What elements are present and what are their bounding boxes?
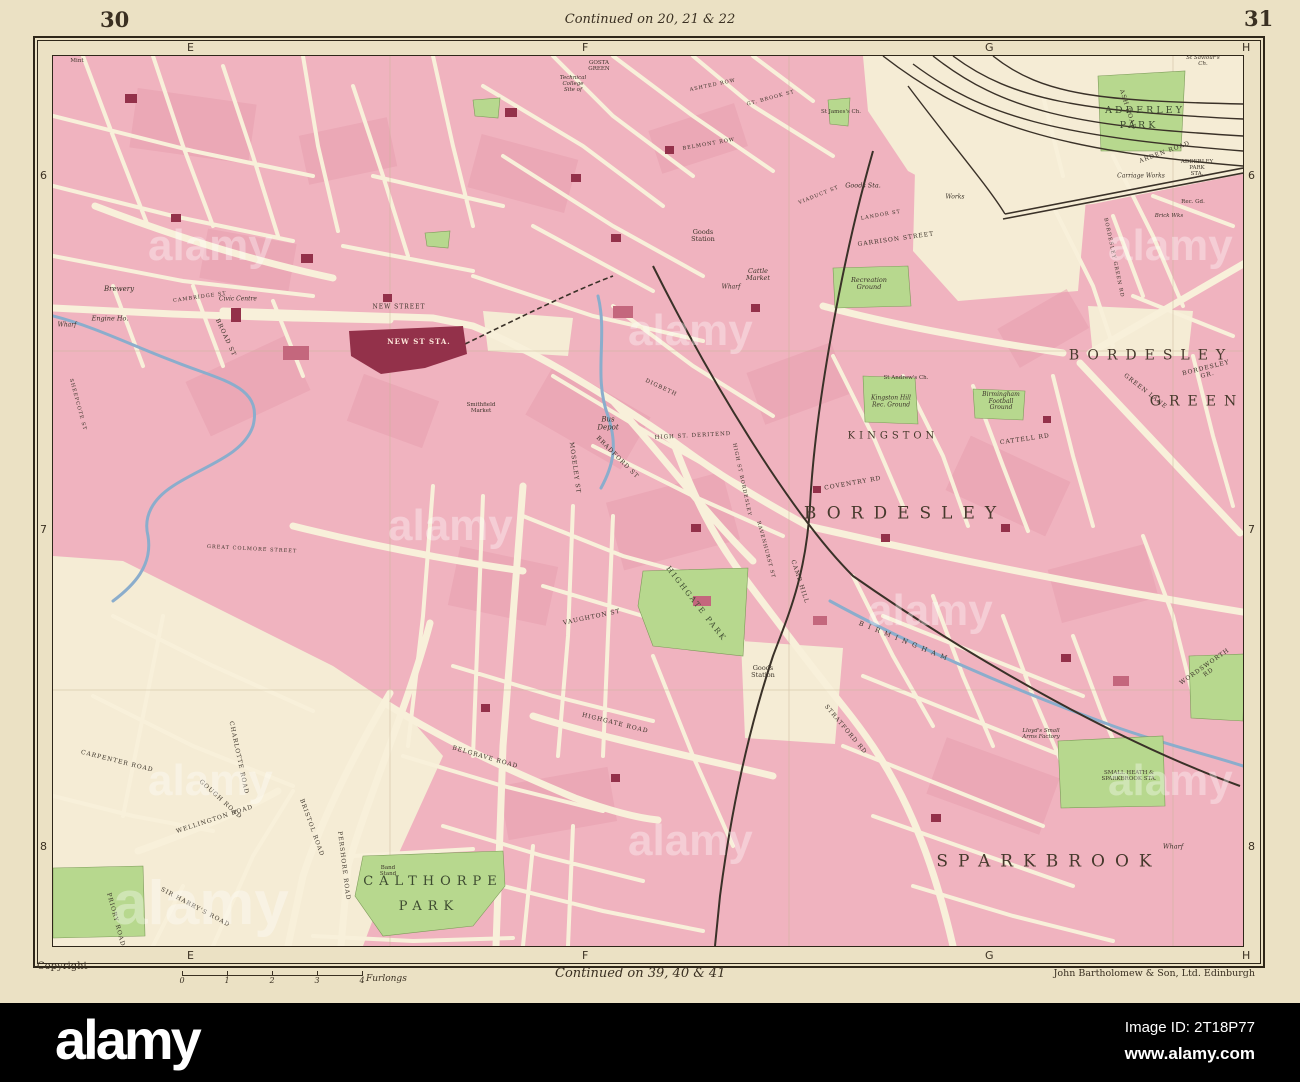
grid-letter-bottom: H [1242, 949, 1250, 962]
scale-unit: Furlongs [366, 974, 407, 984]
continued-top-note: Continued on 20, 21 & 22 [0, 12, 1300, 27]
watermark-layer: alamyalamyalamyalamyalamyalamyalamyalamy… [53, 56, 1243, 946]
alamy-watermark: alamy [628, 816, 753, 866]
map-neatline: EFGH EFGH 678 678 [37, 40, 1261, 964]
grid-number-right: 7 [1248, 523, 1255, 536]
alamy-logo: alamy [55, 1007, 199, 1072]
grid-number-right: 8 [1248, 840, 1255, 853]
grid-band-right: 678 [1246, 55, 1260, 945]
grid-band-left: 678 [38, 55, 52, 945]
grid-letter-bottom: E [187, 949, 194, 962]
grid-letter-top: E [187, 41, 194, 54]
grid-number-left: 8 [40, 840, 47, 853]
map-frame: EFGH EFGH 678 678 [33, 36, 1265, 968]
grid-number-left: 6 [40, 169, 47, 182]
alamy-watermark: alamy [148, 221, 273, 271]
alamy-watermark: alamy [1108, 221, 1233, 271]
copyright-note: Copyright [37, 961, 88, 972]
scale-tick-label: 3 [314, 976, 319, 985]
alamy-bar: alamy Image ID: 2T18P77 www.alamy.com [0, 1003, 1300, 1082]
alamy-watermark: alamy [628, 306, 753, 356]
grid-letter-top: F [582, 41, 588, 54]
alamy-watermark: alamy [1108, 756, 1233, 806]
grid-band-bottom: EFGH [52, 949, 1242, 963]
alamy-watermark: alamy [388, 501, 513, 551]
grid-letter-bottom: F [582, 949, 588, 962]
grid-band-top: EFGH [52, 41, 1242, 55]
grid-letter-top: H [1242, 41, 1250, 54]
scale-tick-label: 4 [359, 976, 364, 985]
grid-number-right: 6 [1248, 169, 1255, 182]
publisher-imprint: John Bartholomew & Son, Ltd. Edinburgh [1054, 968, 1255, 979]
scanned-map-sheet: 30 31 Continued on 20, 21 & 22 EFGH EFGH… [0, 0, 1300, 1082]
grid-letter-top: G [985, 41, 994, 54]
map-canvas: BORDESLEYSPARKBROOKBORDESLEYGREENKINGSTO… [52, 55, 1244, 947]
alamy-watermark: alamy [868, 586, 993, 636]
alamy-url: www.alamy.com [1125, 1044, 1255, 1064]
scale-tick-label: 0 [179, 976, 184, 985]
image-id: Image ID: 2T18P77 [1125, 1019, 1255, 1036]
scale-tick-label: 1 [224, 976, 229, 985]
alamy-info: Image ID: 2T18P77 www.alamy.com [1125, 1019, 1255, 1064]
scale-tick-label: 2 [269, 976, 274, 985]
grid-letter-bottom: G [985, 949, 994, 962]
alamy-watermark: alamy [148, 756, 273, 806]
alamy-watermark: alamy [113, 868, 289, 939]
grid-number-left: 7 [40, 523, 47, 536]
scale-bar: Furlongs 01234 [182, 971, 362, 987]
continued-bottom-note: Continued on 39, 40 & 41 [555, 966, 725, 981]
